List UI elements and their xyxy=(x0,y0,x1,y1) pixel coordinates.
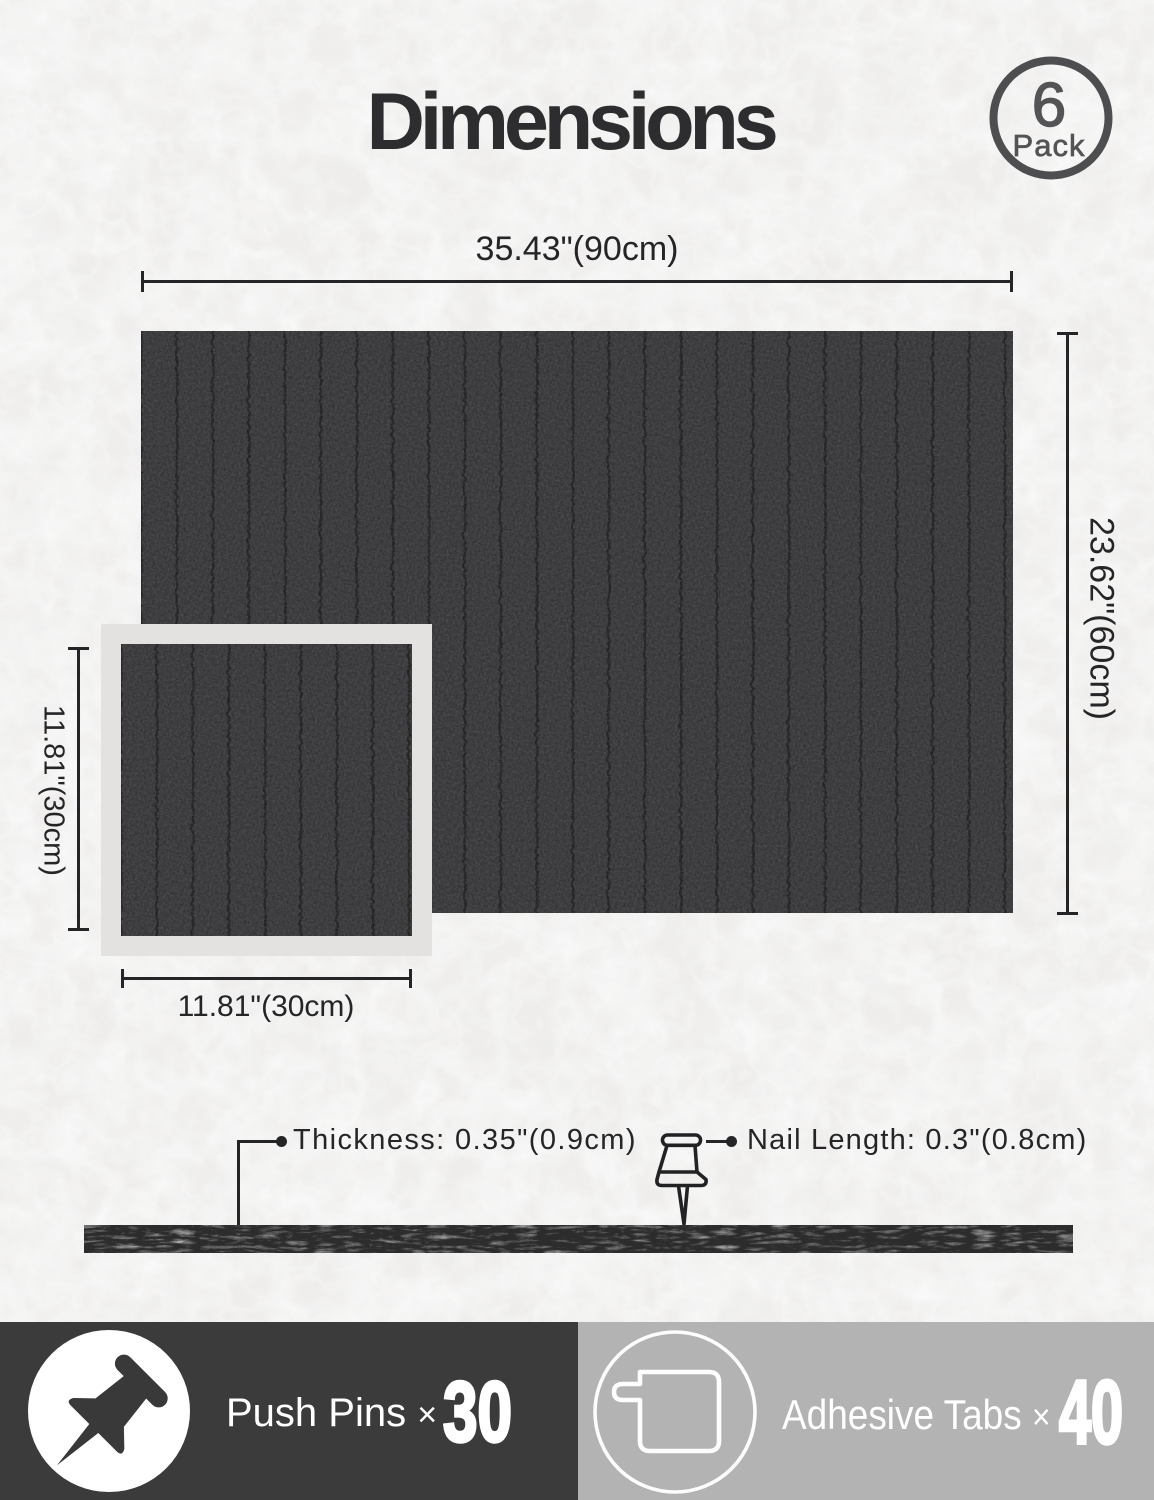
svg-text:Pack: Pack xyxy=(1013,128,1086,163)
